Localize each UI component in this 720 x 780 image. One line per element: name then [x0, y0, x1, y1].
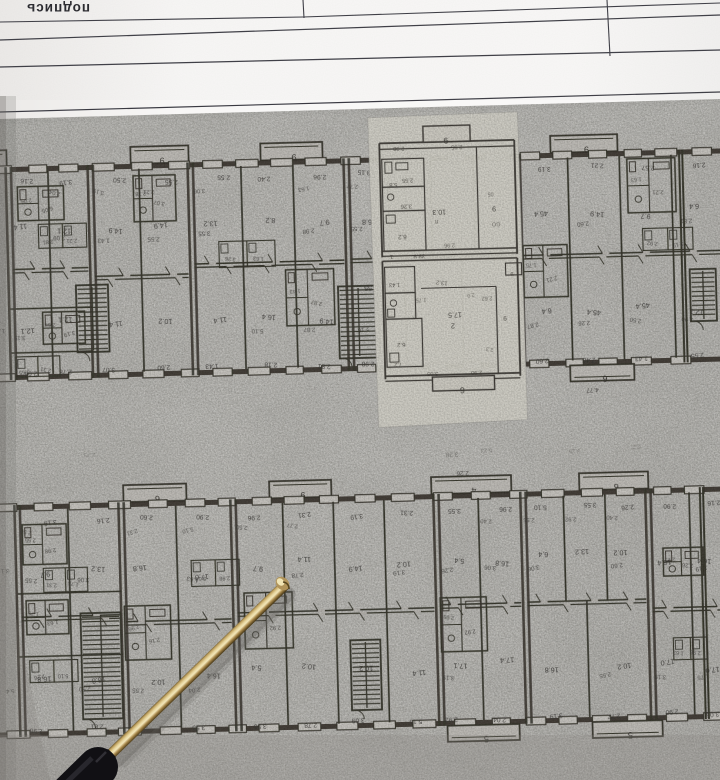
svg-text:подпись: подпись: [26, 1, 90, 16]
